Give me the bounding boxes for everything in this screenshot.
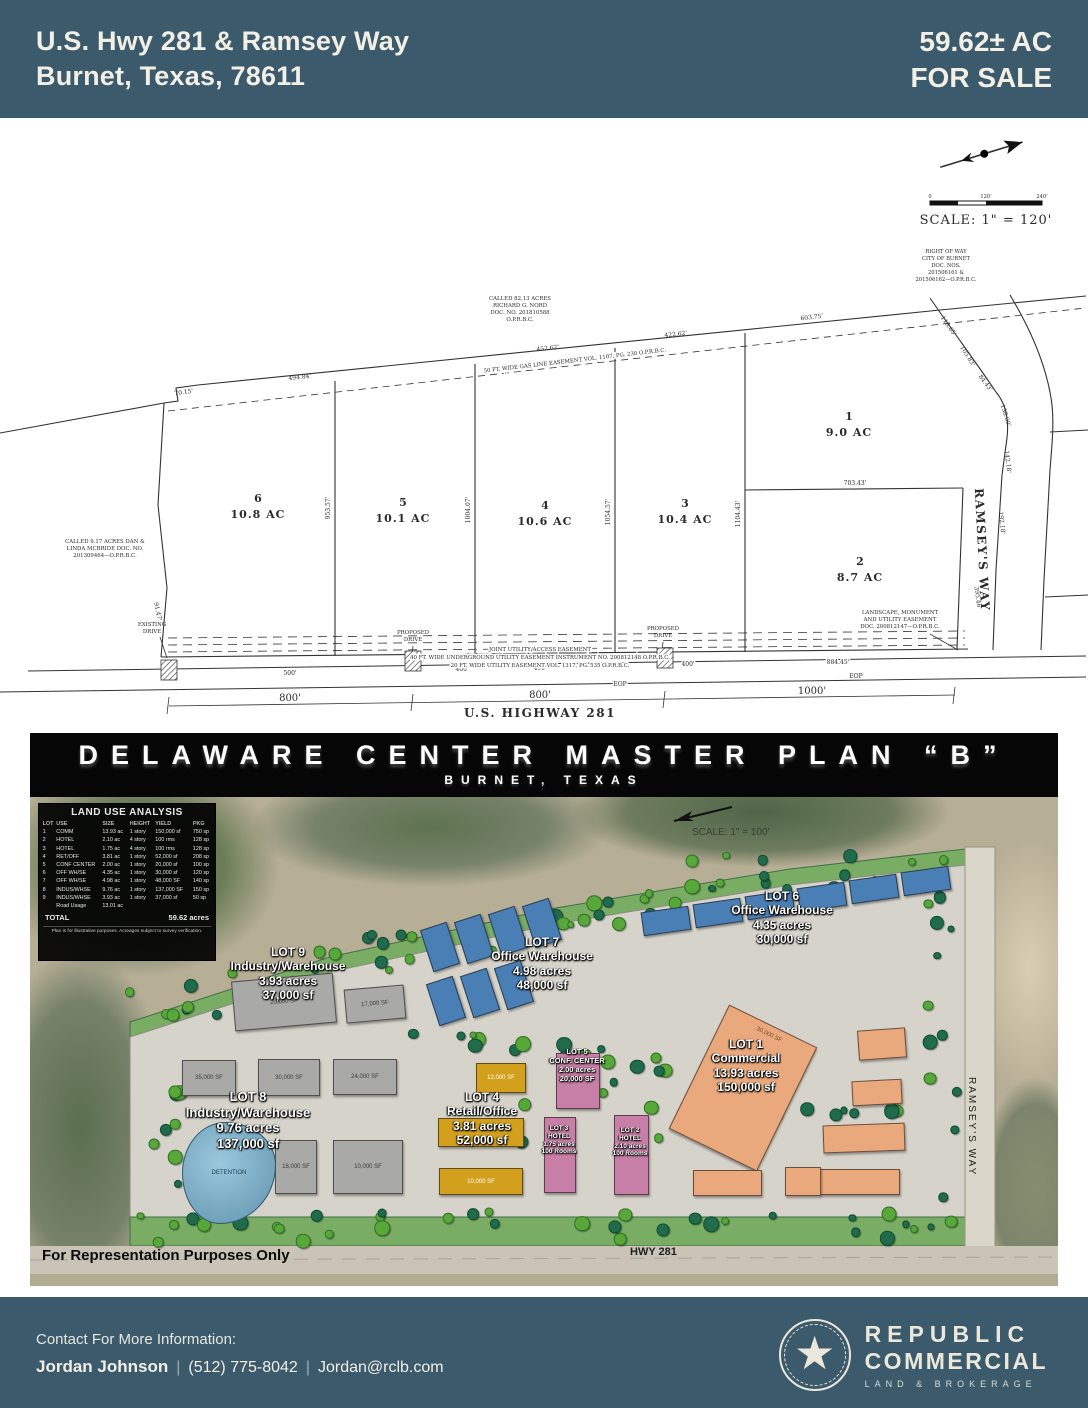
acreage-text: 59.62± AC	[910, 24, 1052, 60]
lot2-number: 2	[856, 555, 864, 568]
svg-text:452.62': 452.62'	[536, 344, 560, 354]
svg-text:603.75': 603.75'	[800, 313, 824, 323]
svg-text:118.65': 118.65'	[939, 315, 958, 338]
svg-text:CITY OF BURNET: CITY OF BURNET	[922, 256, 970, 262]
svg-text:LINDA MCBRIDE DOC. NO.: LINDA MCBRIDE DOC. NO.	[67, 546, 144, 552]
svg-text:953.57': 953.57'	[325, 496, 332, 519]
building-10000sf: 10,000 SF	[439, 1168, 523, 1195]
land-use-total-label: TOTAL	[45, 913, 69, 922]
scale-tick-0: 0	[928, 194, 931, 200]
plan-scale-label: SCALE: 1" = 100'	[692, 827, 769, 838]
svg-text:40 FT. WIDE UNDERGROUND UTILIT: 40 FT. WIDE UNDERGROUND UTILITY EASEMENT…	[410, 655, 670, 661]
land-use-total-value: 59.62 acres	[169, 913, 209, 922]
svg-text:703.43': 703.43'	[844, 480, 867, 487]
footer-band: Contact For More Information: Jordan Joh…	[0, 1297, 1088, 1408]
svg-text:1000': 1000'	[798, 686, 826, 697]
svg-text:RICHARD G. NORD: RICHARD G. NORD	[493, 303, 548, 309]
svg-text:DOC. 200812147—O.P.R.B.C.: DOC. 200812147—O.P.R.B.C.	[860, 624, 940, 630]
lot1-number: 1	[845, 410, 853, 423]
brand-name-line1: REPUBLIC	[865, 1321, 1048, 1348]
north-arrow-icon	[938, 135, 1024, 174]
svg-text:CALLED 82.13 ACRES: CALLED 82.13 ACRES	[489, 296, 551, 302]
svg-text:84.43': 84.43'	[977, 374, 994, 393]
lot2-acreage: 8.7 AC	[837, 571, 883, 584]
lot6-acreage: 10.8 AC	[231, 508, 286, 521]
building-12000sf: 12,000 SF	[476, 1063, 526, 1093]
commercial-building	[820, 1169, 900, 1195]
svg-text:50 FT. WIDE GAS LINE EASEMENT: 50 FT. WIDE GAS LINE EASEMENT VOL. 1107,…	[483, 347, 666, 374]
right-of-way-note: RIGHT OF WAY CITY OF BURNET DOC. NOS. 20…	[915, 249, 976, 283]
commercial-building	[785, 1167, 821, 1196]
svg-text:400': 400'	[681, 661, 694, 668]
scale-label: SCALE: 1" = 120'	[920, 213, 1053, 228]
svg-text:70.15': 70.15'	[174, 388, 194, 398]
commercial-building	[851, 1079, 902, 1107]
lot3-label: LOT 3 HOTEL 1.75 acres 100 Rooms	[542, 1125, 577, 1156]
highway-and-easement-lines	[0, 631, 1086, 714]
contact-heading: Contact For More Information:	[36, 1327, 444, 1353]
star-icon: ★	[794, 1330, 835, 1376]
svg-text:91.47': 91.47'	[152, 602, 163, 622]
logo-star-seal: ★	[779, 1319, 851, 1391]
tree-row	[150, 1032, 180, 1212]
svg-text:DRIVE: DRIVE	[143, 629, 161, 635]
brand-name-line2: COMMERCIAL	[865, 1348, 1048, 1375]
lot3-number: 3	[681, 497, 689, 510]
svg-text:201506162—O.P.R.B.C.: 201506162—O.P.R.B.C.	[915, 277, 976, 283]
address-line2: Burnet, Texas, 78611	[36, 59, 409, 94]
svg-text:PROPOSED: PROPOSED	[397, 630, 430, 636]
commercial-building	[693, 1170, 762, 1196]
flyer-page: U.S. Hwy 281 & Ramsey Way Burnet, Texas,…	[0, 0, 1088, 1408]
contact-block: Contact For More Information: Jordan Joh…	[36, 1327, 444, 1381]
svg-text:1004.07': 1004.07'	[465, 496, 472, 523]
svg-text:DRIVE: DRIVE	[654, 633, 672, 639]
plan-north-arrow-icon	[670, 801, 740, 827]
svg-text:EOP: EOP	[849, 673, 862, 680]
master-plan-banner: DELAWARE CENTER MASTER PLAN “B” BURNET, …	[30, 733, 1058, 797]
svg-text:1054.57': 1054.57'	[605, 498, 612, 525]
lot9-label: LOT 9 Industry/Warehouse 3.93 acres 37,0…	[231, 945, 346, 1003]
representation-disclaimer: For Representation Purposes Only	[42, 1247, 290, 1264]
contact-name: Jordan Johnson	[36, 1357, 168, 1376]
lot4-acreage: 10.6 AC	[518, 515, 573, 528]
land-use-footnote: Plan is for illustrative purposes. Acrea…	[43, 926, 211, 934]
contact-email[interactable]: Jordan@rclb.com	[318, 1359, 444, 1376]
lot5-number: 5	[399, 496, 407, 509]
svg-text:DOC. NOS.: DOC. NOS.	[931, 263, 961, 269]
lot7-label: LOT 7 Office Warehouse 4.98 acres 48,000…	[491, 935, 593, 993]
svg-text:800': 800'	[529, 690, 551, 701]
header-band: U.S. Hwy 281 & Ramsey Way Burnet, Texas,…	[0, 0, 1088, 118]
svg-text:DRIVE: DRIVE	[404, 637, 422, 643]
svg-text:500': 500'	[283, 670, 296, 677]
svg-text:AND UTILITY EASEMENT: AND UTILITY EASEMENT	[863, 617, 937, 623]
svg-text:201309464—O.P.R.B.C.: 201309464—O.P.R.B.C.	[73, 553, 137, 559]
svg-text:201506161 &: 201506161 &	[928, 270, 964, 276]
svg-text:RIGHT OF WAY: RIGHT OF WAY	[925, 249, 967, 255]
lot4-label: LOT 4 Retail/Office 3.81 acres 52,000 sf	[447, 1090, 517, 1148]
svg-text:1104.43': 1104.43'	[735, 500, 742, 527]
svg-text:PROPOSED: PROPOSED	[647, 626, 680, 632]
svg-text:422.62': 422.62'	[664, 330, 688, 340]
svg-text:EXISTING: EXISTING	[138, 622, 166, 628]
lot3-acreage: 10.4 AC	[658, 513, 713, 526]
svg-text:DOC. NO. 201810588: DOC. NO. 201810588	[490, 310, 550, 316]
commercial-building	[823, 1123, 906, 1154]
lot5-acreage: 10.1 AC	[376, 512, 431, 525]
svg-text:O.P.R.B.C.: O.P.R.B.C.	[506, 317, 533, 323]
lot8-label: LOT 8 Industry/Warehouse 9.76 acres 137,…	[186, 1089, 310, 1151]
svg-text:20 FT. WIDE UTILITY EASEMENT V: 20 FT. WIDE UTILITY EASEMENT VOL. 1317, …	[451, 663, 630, 669]
lot5-label: LOT 5 CONF. CENTER 2.00 acres 20,000 SF	[549, 1047, 604, 1083]
building-10000sf: 10,000 SF	[333, 1140, 403, 1194]
lot2-label: LOT 2 HOTEL 2.10 acres 100 Rooms	[613, 1127, 648, 1158]
contact-phone[interactable]: (512) 775-8042	[188, 1359, 297, 1376]
svg-text:800': 800'	[279, 693, 301, 704]
svg-text:105.83': 105.83'	[958, 345, 976, 368]
hwy-281-label: HWY 281	[630, 1246, 677, 1258]
land-use-analysis-table: LAND USE ANALYSIS LOTUSESIZEHEIGHTYIELDP…	[38, 803, 216, 961]
master-plan-rendering: 20,000 SF 17,000 SF 35,000 SF 30,000 SF …	[30, 797, 1058, 1286]
tree-row	[125, 1212, 955, 1242]
svg-text:494.84': 494.84'	[288, 373, 312, 383]
building-17000sf: 17,000 SF	[344, 984, 407, 1023]
scale-bar: 0 120' 240' SCALE: 1" = 120'	[920, 194, 1053, 228]
us-highway-281-label: U.S. HIGHWAY 281	[464, 706, 616, 720]
banner-title: DELAWARE CENTER MASTER PLAN “B”	[30, 740, 1058, 771]
address-line1: U.S. Hwy 281 & Ramsey Way	[36, 24, 409, 59]
commercial-building	[857, 1027, 907, 1060]
svg-text:JOINT UTILITY/ACCESS EASEMENT: JOINT UTILITY/ACCESS EASEMENT	[488, 647, 591, 653]
svg-text:CALLED 9.17 ACRES DAN &: CALLED 9.17 ACRES DAN &	[65, 539, 145, 545]
offer-summary: 59.62± AC FOR SALE	[910, 24, 1052, 96]
lot1-label: LOT 1 Commercial 13.93 acres 150,000 sf	[712, 1037, 781, 1095]
republic-commercial-logo: ★ REPUBLIC COMMERCIAL LAND & BROKERAGE	[779, 1319, 1048, 1391]
svg-text:142.18': 142.18'	[1003, 450, 1013, 474]
lot1-acreage: 9.0 AC	[826, 426, 872, 439]
property-address: U.S. Hwy 281 & Ramsey Way Burnet, Texas,…	[36, 24, 409, 93]
svg-text:884.45': 884.45'	[827, 659, 850, 666]
survey-plat-drawing: 0 120' 240' SCALE: 1" = 120' RIGHT OF WA…	[0, 118, 1088, 733]
svg-text:158.00': 158.00'	[999, 404, 1013, 428]
land-use-title: LAND USE ANALYSIS	[39, 807, 215, 818]
lot6-label: LOT 6 Office Warehouse 4.35 acres 30,000…	[731, 889, 833, 947]
banner-subtitle: BURNET, TEXAS	[30, 773, 1058, 787]
ramseys-way-plan-label: RAMSEY'S WAY	[966, 1077, 977, 1176]
svg-text:EOP: EOP	[613, 681, 626, 688]
building-24000sf: 24,000 SF	[333, 1059, 397, 1095]
brand-tagline: LAND & BROKERAGE	[865, 1379, 1048, 1389]
tree-row	[928, 857, 958, 1237]
lot4-number: 4	[541, 499, 549, 512]
lot6-number: 6	[254, 492, 262, 505]
for-sale-text: FOR SALE	[910, 60, 1052, 96]
land-use-rows: LOTUSESIZEHEIGHTYIELDPKG1COMM13.93 ac1 s…	[42, 820, 213, 910]
scale-tick-240: 240'	[1036, 194, 1047, 200]
svg-text:LANDSCAPE, MONUMENT: LANDSCAPE, MONUMENT	[862, 610, 939, 616]
scale-tick-120: 120'	[980, 194, 991, 200]
